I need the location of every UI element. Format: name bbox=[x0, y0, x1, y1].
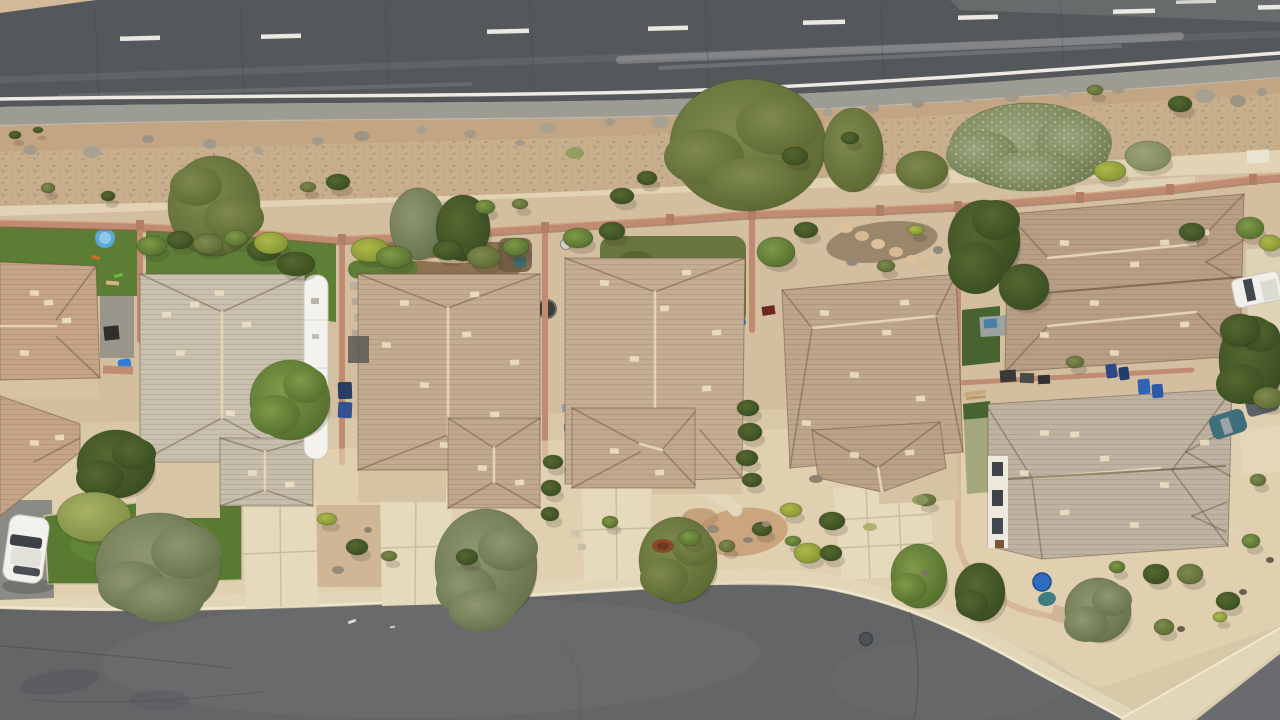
strip-bush-shadow bbox=[13, 140, 24, 146]
side-gate bbox=[103, 365, 133, 374]
front-rock bbox=[809, 475, 823, 483]
rock bbox=[23, 145, 37, 155]
house-7-roof bbox=[988, 389, 1232, 559]
house-4-front-gable-tiles bbox=[572, 408, 695, 488]
front-bush-foliage bbox=[719, 540, 735, 552]
shed-solar-panel bbox=[984, 319, 998, 329]
house-7-door bbox=[995, 540, 1004, 548]
hedge-bush-foliage bbox=[737, 400, 759, 416]
boulder bbox=[846, 258, 858, 266]
front-rock bbox=[762, 521, 770, 527]
rock bbox=[417, 126, 427, 134]
house-6-roof-tile-patch bbox=[1180, 322, 1189, 328]
overhang-tree-foliage-lobe bbox=[124, 578, 204, 622]
front-bush-foliage bbox=[1109, 561, 1125, 573]
house-3-roof-tile-patch bbox=[420, 382, 429, 388]
hedge-bush-foliage bbox=[541, 507, 559, 521]
house-7-window bbox=[992, 518, 1003, 534]
front-tree-foliage-lobe bbox=[1092, 584, 1132, 616]
big-olive-tree-foliage-lobe bbox=[736, 95, 820, 155]
strip-bush-foliage bbox=[1087, 85, 1103, 95]
rock bbox=[651, 116, 669, 128]
flagstone bbox=[871, 239, 885, 249]
rock bbox=[963, 97, 973, 103]
front-rock bbox=[707, 525, 719, 533]
yard-bush-foliage bbox=[908, 225, 924, 235]
front-rock bbox=[743, 537, 753, 543]
utility-pad bbox=[1247, 149, 1270, 163]
overhang-tree-foliage-lobe bbox=[478, 525, 538, 571]
lot6-tree-foliage-lobe bbox=[948, 242, 1004, 294]
hedge-bush-foliage bbox=[541, 480, 561, 496]
rv-vent bbox=[312, 334, 319, 339]
overhang-tree-foliage-lobe bbox=[449, 589, 515, 631]
edge-bush-foliage bbox=[1259, 235, 1280, 251]
house-4-front-gable bbox=[572, 408, 695, 488]
lot6-tree-foliage bbox=[999, 264, 1049, 310]
rv-vent bbox=[311, 298, 319, 304]
house-2-roof-tile-patch bbox=[215, 290, 224, 296]
house-5-roof-tile-patch bbox=[802, 420, 811, 426]
house-7-roof-tile-patch bbox=[1020, 470, 1029, 476]
strip-bush-foliage bbox=[101, 191, 115, 201]
yard-bush-foliage bbox=[467, 246, 501, 268]
strip-bush-foliage bbox=[1168, 96, 1192, 112]
house-1-roof-tile-patch bbox=[30, 290, 39, 296]
house-7-roof-tile-patch bbox=[1040, 430, 1049, 436]
house-3-front-gable bbox=[448, 418, 540, 508]
house-1-roof-tile-patch bbox=[20, 350, 29, 356]
house-6-roof-tile-patch bbox=[1060, 240, 1069, 246]
rock bbox=[83, 146, 101, 158]
house-6-roof-tile-patch bbox=[1160, 240, 1169, 246]
rock bbox=[1060, 90, 1070, 98]
flagstone bbox=[889, 247, 903, 257]
rubber-mat bbox=[348, 336, 369, 363]
house-3-roof-tile-patch bbox=[490, 412, 499, 418]
house-2-roof-tile-patch bbox=[162, 312, 171, 318]
house-5-roof-tile-patch bbox=[900, 300, 909, 306]
yard-bush-foliage bbox=[224, 230, 248, 246]
wall-pilaster bbox=[338, 234, 346, 245]
rock bbox=[823, 108, 833, 116]
front-bush-foliage bbox=[819, 512, 845, 530]
house-7-roof-tile-patch bbox=[1060, 510, 1069, 516]
rust-bush-core bbox=[657, 542, 669, 550]
house-4-roof-tile-patch bbox=[630, 356, 639, 362]
house-5-roof-tile-patch bbox=[820, 310, 829, 316]
front-bush-foliage bbox=[1250, 474, 1266, 486]
grass-tuft bbox=[566, 147, 584, 159]
driveway-house7 bbox=[1240, 426, 1280, 474]
chartreuse-bush-foliage bbox=[1094, 161, 1126, 181]
house-3-roof-tile-patch bbox=[400, 300, 409, 306]
equipment bbox=[1020, 373, 1034, 383]
rock bbox=[540, 123, 556, 133]
grass-tuft bbox=[863, 523, 877, 531]
front-tree bbox=[76, 430, 156, 499]
house-2-front-gable-tiles bbox=[220, 438, 313, 506]
rock bbox=[912, 100, 924, 108]
house-1-front-wing-tile-patch bbox=[55, 435, 64, 441]
house-1-roof-tile-patch bbox=[62, 318, 71, 324]
house-7-window bbox=[992, 462, 1003, 476]
house-3-roof-tile-patch bbox=[470, 292, 479, 298]
house-2-front-gable bbox=[220, 438, 313, 506]
scene-root bbox=[0, 0, 1280, 720]
front-rock bbox=[1266, 557, 1274, 563]
rock bbox=[354, 131, 370, 141]
edge-tree-foliage bbox=[1253, 387, 1280, 409]
yard-bush-foliage bbox=[137, 236, 167, 256]
front-bush-foliage bbox=[679, 530, 701, 546]
rock bbox=[1195, 89, 1215, 103]
rock bbox=[1005, 92, 1019, 102]
front-rock bbox=[332, 566, 344, 574]
front-rock bbox=[1177, 626, 1185, 632]
house-7-roof-tile-patch bbox=[1070, 432, 1079, 438]
palm-foliage bbox=[254, 232, 288, 254]
hedge-bush-foliage bbox=[738, 423, 762, 441]
rock bbox=[1112, 86, 1124, 94]
strip-bush-foliage bbox=[9, 131, 21, 139]
yard-bush-foliage bbox=[193, 234, 223, 254]
house-3-roof-tile-patch bbox=[462, 332, 471, 338]
house-3-roof-tile-patch bbox=[510, 360, 519, 366]
house-3-front-gable-tile-patch bbox=[515, 480, 524, 486]
strip-bush-foliage bbox=[41, 183, 55, 193]
house-4-roof-tile-patch bbox=[600, 280, 609, 286]
yard-bush-foliage bbox=[877, 260, 895, 272]
trash-bin bbox=[338, 382, 353, 399]
house-3-roof-tile-patch bbox=[382, 342, 391, 348]
wall-pilaster bbox=[136, 220, 144, 231]
front-bush-foliage bbox=[820, 545, 842, 561]
house-3-front-gable-tile-patch bbox=[478, 465, 487, 471]
yard-bush-foliage bbox=[563, 228, 593, 248]
yard-bush-foliage bbox=[503, 238, 529, 256]
strip-bush-shadow bbox=[37, 136, 46, 141]
hedge-bush-foliage bbox=[543, 455, 563, 469]
rock bbox=[515, 140, 525, 146]
front-bush-foliage bbox=[794, 543, 822, 563]
house-5-roof-tile-patch bbox=[916, 396, 925, 402]
trash-bin bbox=[1151, 384, 1163, 399]
strip-bush-foliage bbox=[782, 147, 808, 165]
front-tree bbox=[1064, 578, 1132, 644]
rock bbox=[253, 146, 263, 154]
yard-bush-foliage bbox=[599, 222, 625, 240]
edge-bush-foliage bbox=[1236, 217, 1264, 239]
equipment bbox=[1038, 375, 1050, 385]
front-bush-foliage bbox=[780, 503, 802, 517]
trash-bin-round bbox=[1033, 573, 1051, 591]
bbq-grill-lot5 bbox=[761, 305, 775, 316]
house-4-front-gable-tile-patch bbox=[655, 470, 664, 476]
house-5-front-gable-tile-patch bbox=[905, 450, 914, 456]
house-2-roof-tile-patch bbox=[176, 350, 185, 356]
lot6-tree-foliage-lobe bbox=[972, 200, 1020, 240]
house-6-roof-tile-patch bbox=[1040, 332, 1049, 338]
front-tree-between-houses-foliage-lobe bbox=[250, 395, 300, 435]
trash-bin bbox=[338, 402, 353, 419]
rock bbox=[865, 103, 879, 113]
rock bbox=[312, 137, 324, 145]
house-4-roof-tile-patch bbox=[660, 306, 669, 312]
front-tree bbox=[639, 517, 718, 603]
strip-tree-foliage bbox=[1125, 141, 1171, 171]
front-tree-between-houses bbox=[250, 360, 331, 440]
strip-bush-foliage bbox=[610, 188, 634, 204]
house-6-roof-tile-patch bbox=[1110, 350, 1119, 356]
house-2-roof-tile-patch bbox=[190, 302, 199, 308]
overhang-tree bbox=[95, 513, 221, 622]
front-tree-foliage-lobe bbox=[640, 558, 688, 598]
rock bbox=[142, 135, 154, 143]
grass-tuft bbox=[912, 495, 928, 505]
house-6-roof-tile-patch bbox=[1130, 262, 1139, 268]
trash-bin bbox=[1118, 366, 1130, 380]
house-4-roof-tile-patch bbox=[682, 270, 691, 276]
strip-tree-foliage-lobe bbox=[170, 166, 222, 206]
house-4-front-gable-tile-patch bbox=[610, 448, 619, 454]
rock bbox=[1257, 88, 1267, 96]
flagstone bbox=[920, 261, 932, 269]
rock bbox=[605, 118, 615, 126]
house-7-window bbox=[992, 490, 1003, 506]
flagstone bbox=[839, 223, 853, 233]
front-tree-foliage-lobe bbox=[891, 573, 927, 603]
paver bbox=[571, 530, 581, 538]
house-1-front-wing-tile-patch bbox=[30, 440, 39, 446]
front-bush-foliage bbox=[346, 539, 368, 555]
front-bush-foliage bbox=[1177, 564, 1203, 584]
aerial-photo-rendering bbox=[0, 0, 1280, 720]
house-4-roof-tile-patch bbox=[702, 386, 711, 392]
strip-bush-foliage bbox=[841, 132, 859, 144]
strip-bush-foliage bbox=[300, 182, 316, 192]
edge-bush-foliage bbox=[1179, 223, 1205, 241]
front-rock bbox=[1239, 589, 1247, 595]
front-bush-foliage bbox=[317, 513, 337, 525]
front-bush-foliage bbox=[1066, 356, 1084, 368]
house-1-roof-tile-patch bbox=[44, 300, 53, 306]
wall-pilaster bbox=[876, 205, 884, 216]
front-bush-foliage bbox=[602, 516, 618, 528]
yard-bush-foliage bbox=[167, 231, 193, 249]
yard-bush-foliage bbox=[433, 240, 463, 260]
flagstone bbox=[906, 255, 918, 263]
edge-tree-foliage bbox=[1220, 314, 1260, 346]
house-5-front-gable-tile-patch bbox=[850, 452, 859, 458]
trash-bin bbox=[1105, 363, 1118, 378]
equipment bbox=[1000, 369, 1017, 382]
wall-pilaster bbox=[666, 214, 674, 225]
bbq-grill bbox=[103, 325, 119, 340]
rock bbox=[464, 130, 476, 138]
strip-tree-foliage bbox=[896, 151, 948, 189]
strip-bush-foliage bbox=[33, 127, 43, 133]
house-4-roof-tile-patch bbox=[712, 330, 721, 336]
house-1-roof bbox=[0, 262, 100, 380]
manhole-cover bbox=[860, 633, 873, 646]
wall-pilaster bbox=[1166, 184, 1174, 195]
strip-bush-foliage bbox=[512, 199, 528, 209]
house-7-roof-tile-patch bbox=[1200, 440, 1209, 446]
front-rock bbox=[364, 527, 372, 533]
entry-court-house3 bbox=[358, 468, 446, 502]
house-5-roof-tile-patch bbox=[882, 330, 891, 336]
house-7-roof-tile-patch bbox=[1130, 522, 1139, 528]
front-tree-foliage-lobe bbox=[112, 438, 156, 470]
house-2-roof-tile-patch bbox=[226, 410, 235, 416]
flagstone bbox=[855, 231, 869, 241]
corner-tree-foliage-lobe bbox=[956, 590, 988, 618]
front-bush-foliage bbox=[1154, 619, 1174, 635]
sage-tree-cluster-blossoms bbox=[950, 103, 1110, 191]
house-5-roof-tile-patch bbox=[850, 372, 859, 378]
paver bbox=[578, 544, 586, 551]
front-bush-foliage bbox=[1143, 564, 1169, 584]
courtyard-house1 bbox=[0, 378, 98, 398]
wall-pilaster bbox=[1076, 192, 1084, 203]
yard-tree-foliage bbox=[757, 237, 795, 267]
front-bush-foliage bbox=[785, 536, 801, 546]
hedge-bush-foliage bbox=[742, 473, 762, 487]
front-bush-foliage bbox=[1213, 612, 1227, 622]
palm-foliage bbox=[376, 246, 412, 268]
front-bush-foliage bbox=[456, 549, 478, 565]
wall-pilaster bbox=[541, 222, 549, 233]
strip-bush-foliage bbox=[475, 200, 495, 214]
front-rock bbox=[921, 570, 929, 576]
boulder bbox=[933, 246, 943, 254]
house-2-front-gable-tile-patch bbox=[248, 470, 257, 476]
rock bbox=[1230, 95, 1246, 107]
house-2-front-gable-tile-patch bbox=[285, 482, 294, 488]
strip-bush-foliage bbox=[637, 171, 657, 185]
house-6-roof-tile-patch bbox=[1090, 300, 1099, 306]
front-bush-foliage bbox=[1242, 534, 1260, 548]
house-2-roof-tile-patch bbox=[242, 322, 251, 328]
front-tree-foliage-lobe bbox=[76, 460, 124, 496]
aerial-photo-stage bbox=[0, 0, 1280, 720]
house-7-roof-tile-patch bbox=[1160, 482, 1169, 488]
kiddie-pool-water bbox=[99, 232, 111, 244]
yard-bush-foliage bbox=[794, 222, 818, 238]
front-bush-foliage bbox=[381, 551, 397, 561]
strip-bush-foliage bbox=[326, 174, 350, 190]
trash-bin bbox=[1137, 379, 1150, 395]
hedge-bush-foliage bbox=[736, 450, 758, 466]
overhang-tree-foliage-lobe bbox=[151, 525, 221, 579]
front-bush-foliage bbox=[1216, 592, 1240, 610]
front-tree-between-houses-foliage-lobe bbox=[283, 367, 327, 403]
rock bbox=[203, 139, 217, 149]
house-7-roof-tile-patch bbox=[1100, 456, 1109, 462]
lane-dash bbox=[1258, 5, 1280, 10]
wall-pilaster bbox=[1249, 174, 1257, 185]
